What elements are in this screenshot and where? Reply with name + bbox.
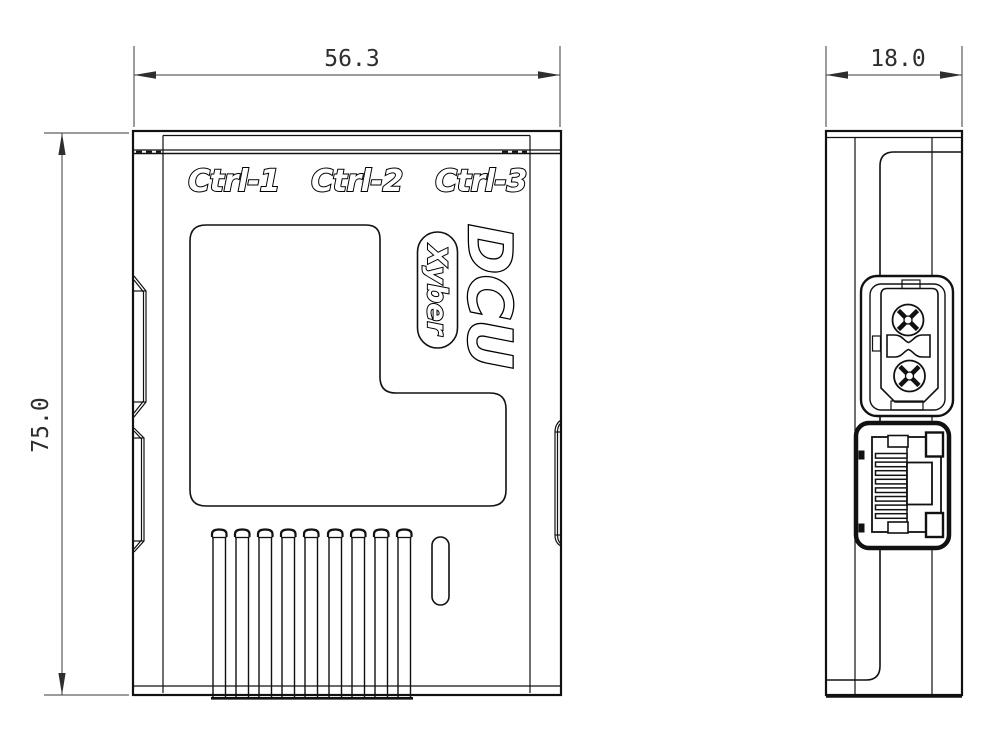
port-label-ctrl3: Ctrl-3	[435, 164, 527, 199]
port-label-ctrl2: Ctrl-2	[311, 164, 403, 199]
technical-drawing-page: Ctrl-1 Ctrl-2 Ctrl-3 Xyber DCU	[0, 0, 1000, 737]
dcu-two-view-drawing: Ctrl-1 Ctrl-2 Ctrl-3 Xyber DCU	[0, 0, 1000, 737]
dim-value-front-height: 75.0	[28, 397, 54, 452]
rj45-mount-nub-bottom	[859, 524, 865, 533]
dim-value-side-depth: 18.0	[870, 46, 925, 72]
rj45-contact-block-bottom	[926, 513, 943, 537]
rj45-tab-bottom	[888, 522, 908, 533]
front-body-outline	[133, 131, 561, 695]
dimension-front-width: 56.3	[134, 46, 560, 127]
front-view: Ctrl-1 Ctrl-2 Ctrl-3 Xyber DCU	[133, 131, 561, 699]
arrowhead-bottom	[58, 673, 65, 695]
xt30-pin-lower	[894, 361, 925, 392]
side-view	[826, 131, 962, 696]
arrowhead-left	[134, 71, 156, 79]
rj45-tab-top	[888, 436, 908, 448]
dimension-front-height: 75.0	[28, 133, 129, 695]
brand-text: Xyber	[421, 243, 452, 336]
dimension-side-depth: 18.0	[826, 46, 962, 127]
rj45-mount-nub-top	[859, 451, 865, 460]
port-label-ctrl1: Ctrl-1	[188, 164, 280, 199]
arrowhead-right	[538, 71, 560, 79]
xt30-pin-upper	[893, 305, 924, 336]
rj45-latch-notch	[907, 463, 932, 505]
dim-value-front-width: 56.3	[324, 46, 379, 72]
arrowhead-top	[58, 133, 65, 155]
rj45-ethernet-port	[856, 423, 949, 548]
arrowhead-right	[940, 71, 962, 79]
xt30-power-connector	[861, 276, 953, 416]
arrowhead-left	[826, 71, 848, 79]
logo-text: DCU	[454, 224, 524, 370]
rj45-contact-block-top	[926, 433, 943, 457]
